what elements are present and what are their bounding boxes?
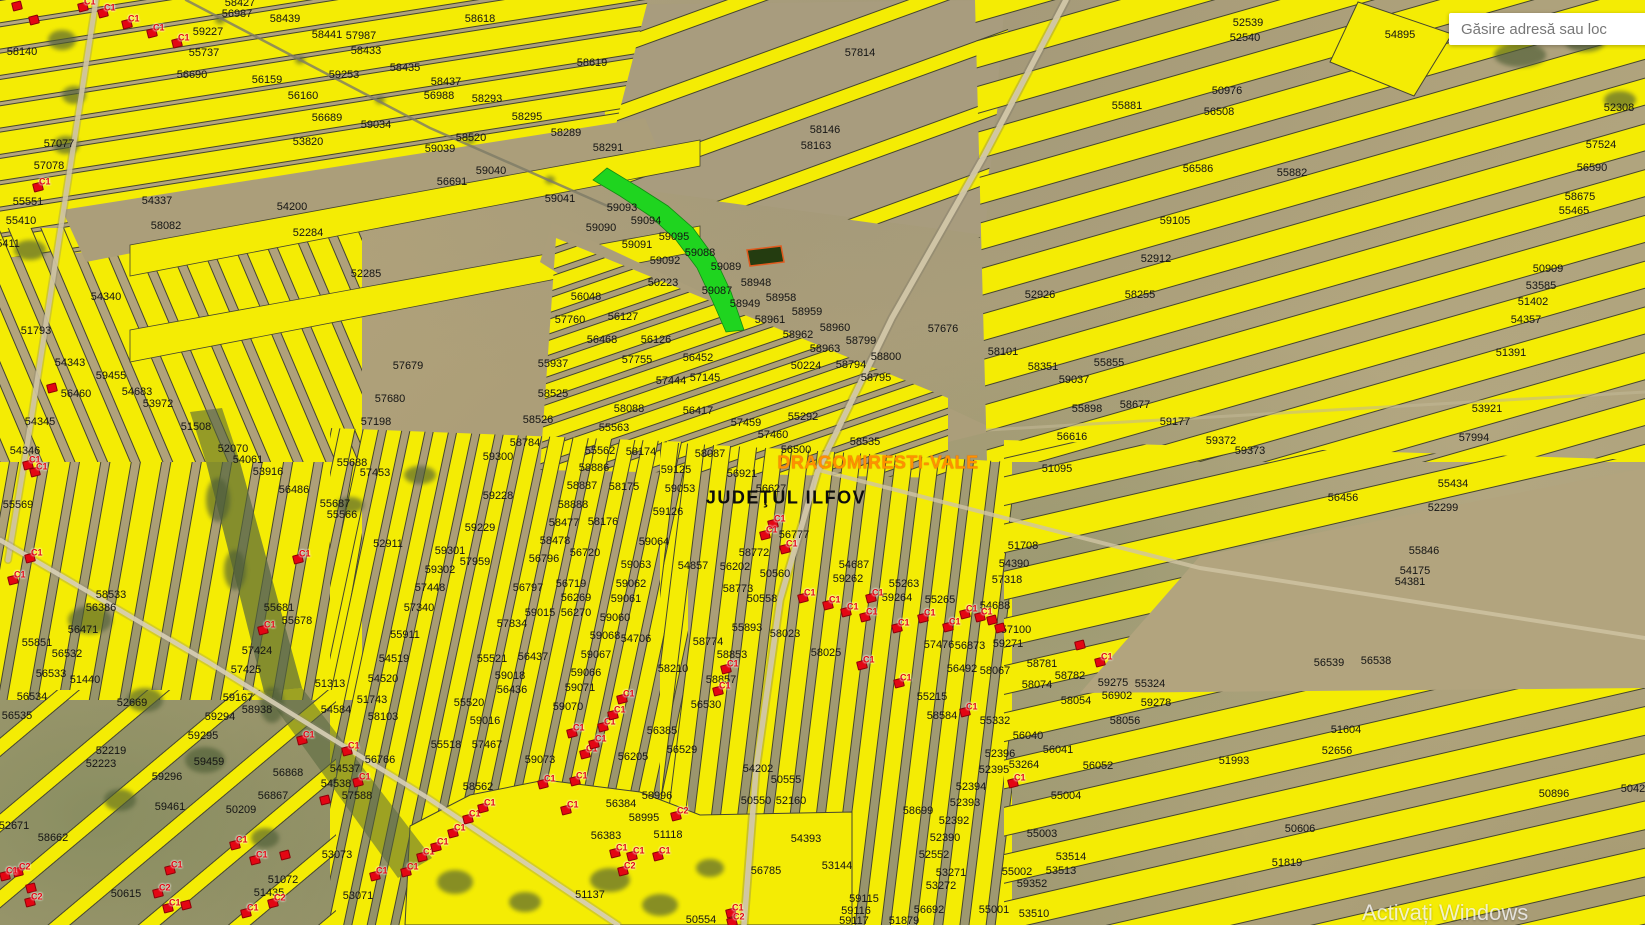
locality-label: DRAGOMIRESTI-VALE bbox=[777, 453, 978, 474]
activate-windows-watermark: Activați Windows bbox=[1362, 900, 1528, 925]
stripe-zone bbox=[0, 690, 336, 925]
stripe-zone bbox=[975, 0, 1645, 462]
county-label: JUDEŢUL ILFOV bbox=[706, 488, 866, 509]
selected-parcel[interactable] bbox=[747, 246, 784, 266]
map-canvas[interactable]: 5842756987584395844159227581405573756690… bbox=[0, 0, 1645, 925]
stripe-zone bbox=[0, 462, 362, 700]
search-input[interactable] bbox=[1449, 13, 1645, 45]
